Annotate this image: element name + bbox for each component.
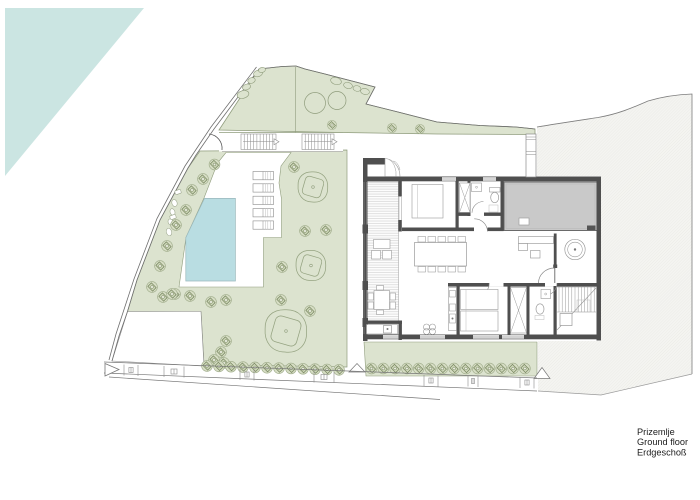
svg-text:Prizemlje: Prizemlje <box>637 427 675 437</box>
svg-text:Erdgeschoß: Erdgeschoß <box>637 448 687 458</box>
svg-text:Ground floor: Ground floor <box>637 437 688 447</box>
